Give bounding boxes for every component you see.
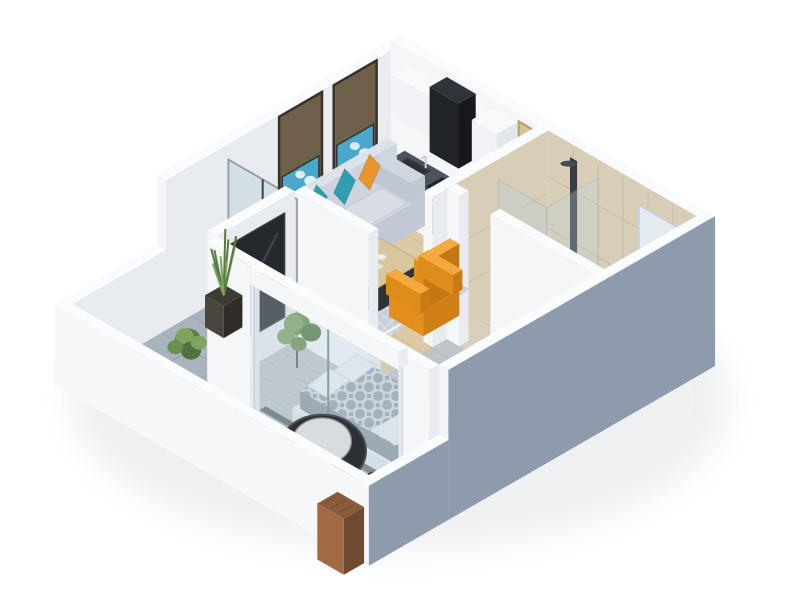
art-blob (350, 142, 360, 150)
wood-planter (317, 492, 364, 575)
planter-box-side (344, 507, 364, 575)
shower-head (561, 161, 577, 167)
floor-plan-render (0, 0, 800, 600)
art-blob (295, 171, 305, 179)
range-hood (430, 77, 476, 169)
bush (167, 340, 183, 354)
planter-box (317, 492, 364, 575)
floor-plan-stage: 3D isometric floor plan render of a one-… (0, 0, 800, 600)
parapet-south-side (369, 480, 378, 565)
bush (191, 336, 207, 350)
wall-bath-hall-a-side (459, 191, 468, 346)
